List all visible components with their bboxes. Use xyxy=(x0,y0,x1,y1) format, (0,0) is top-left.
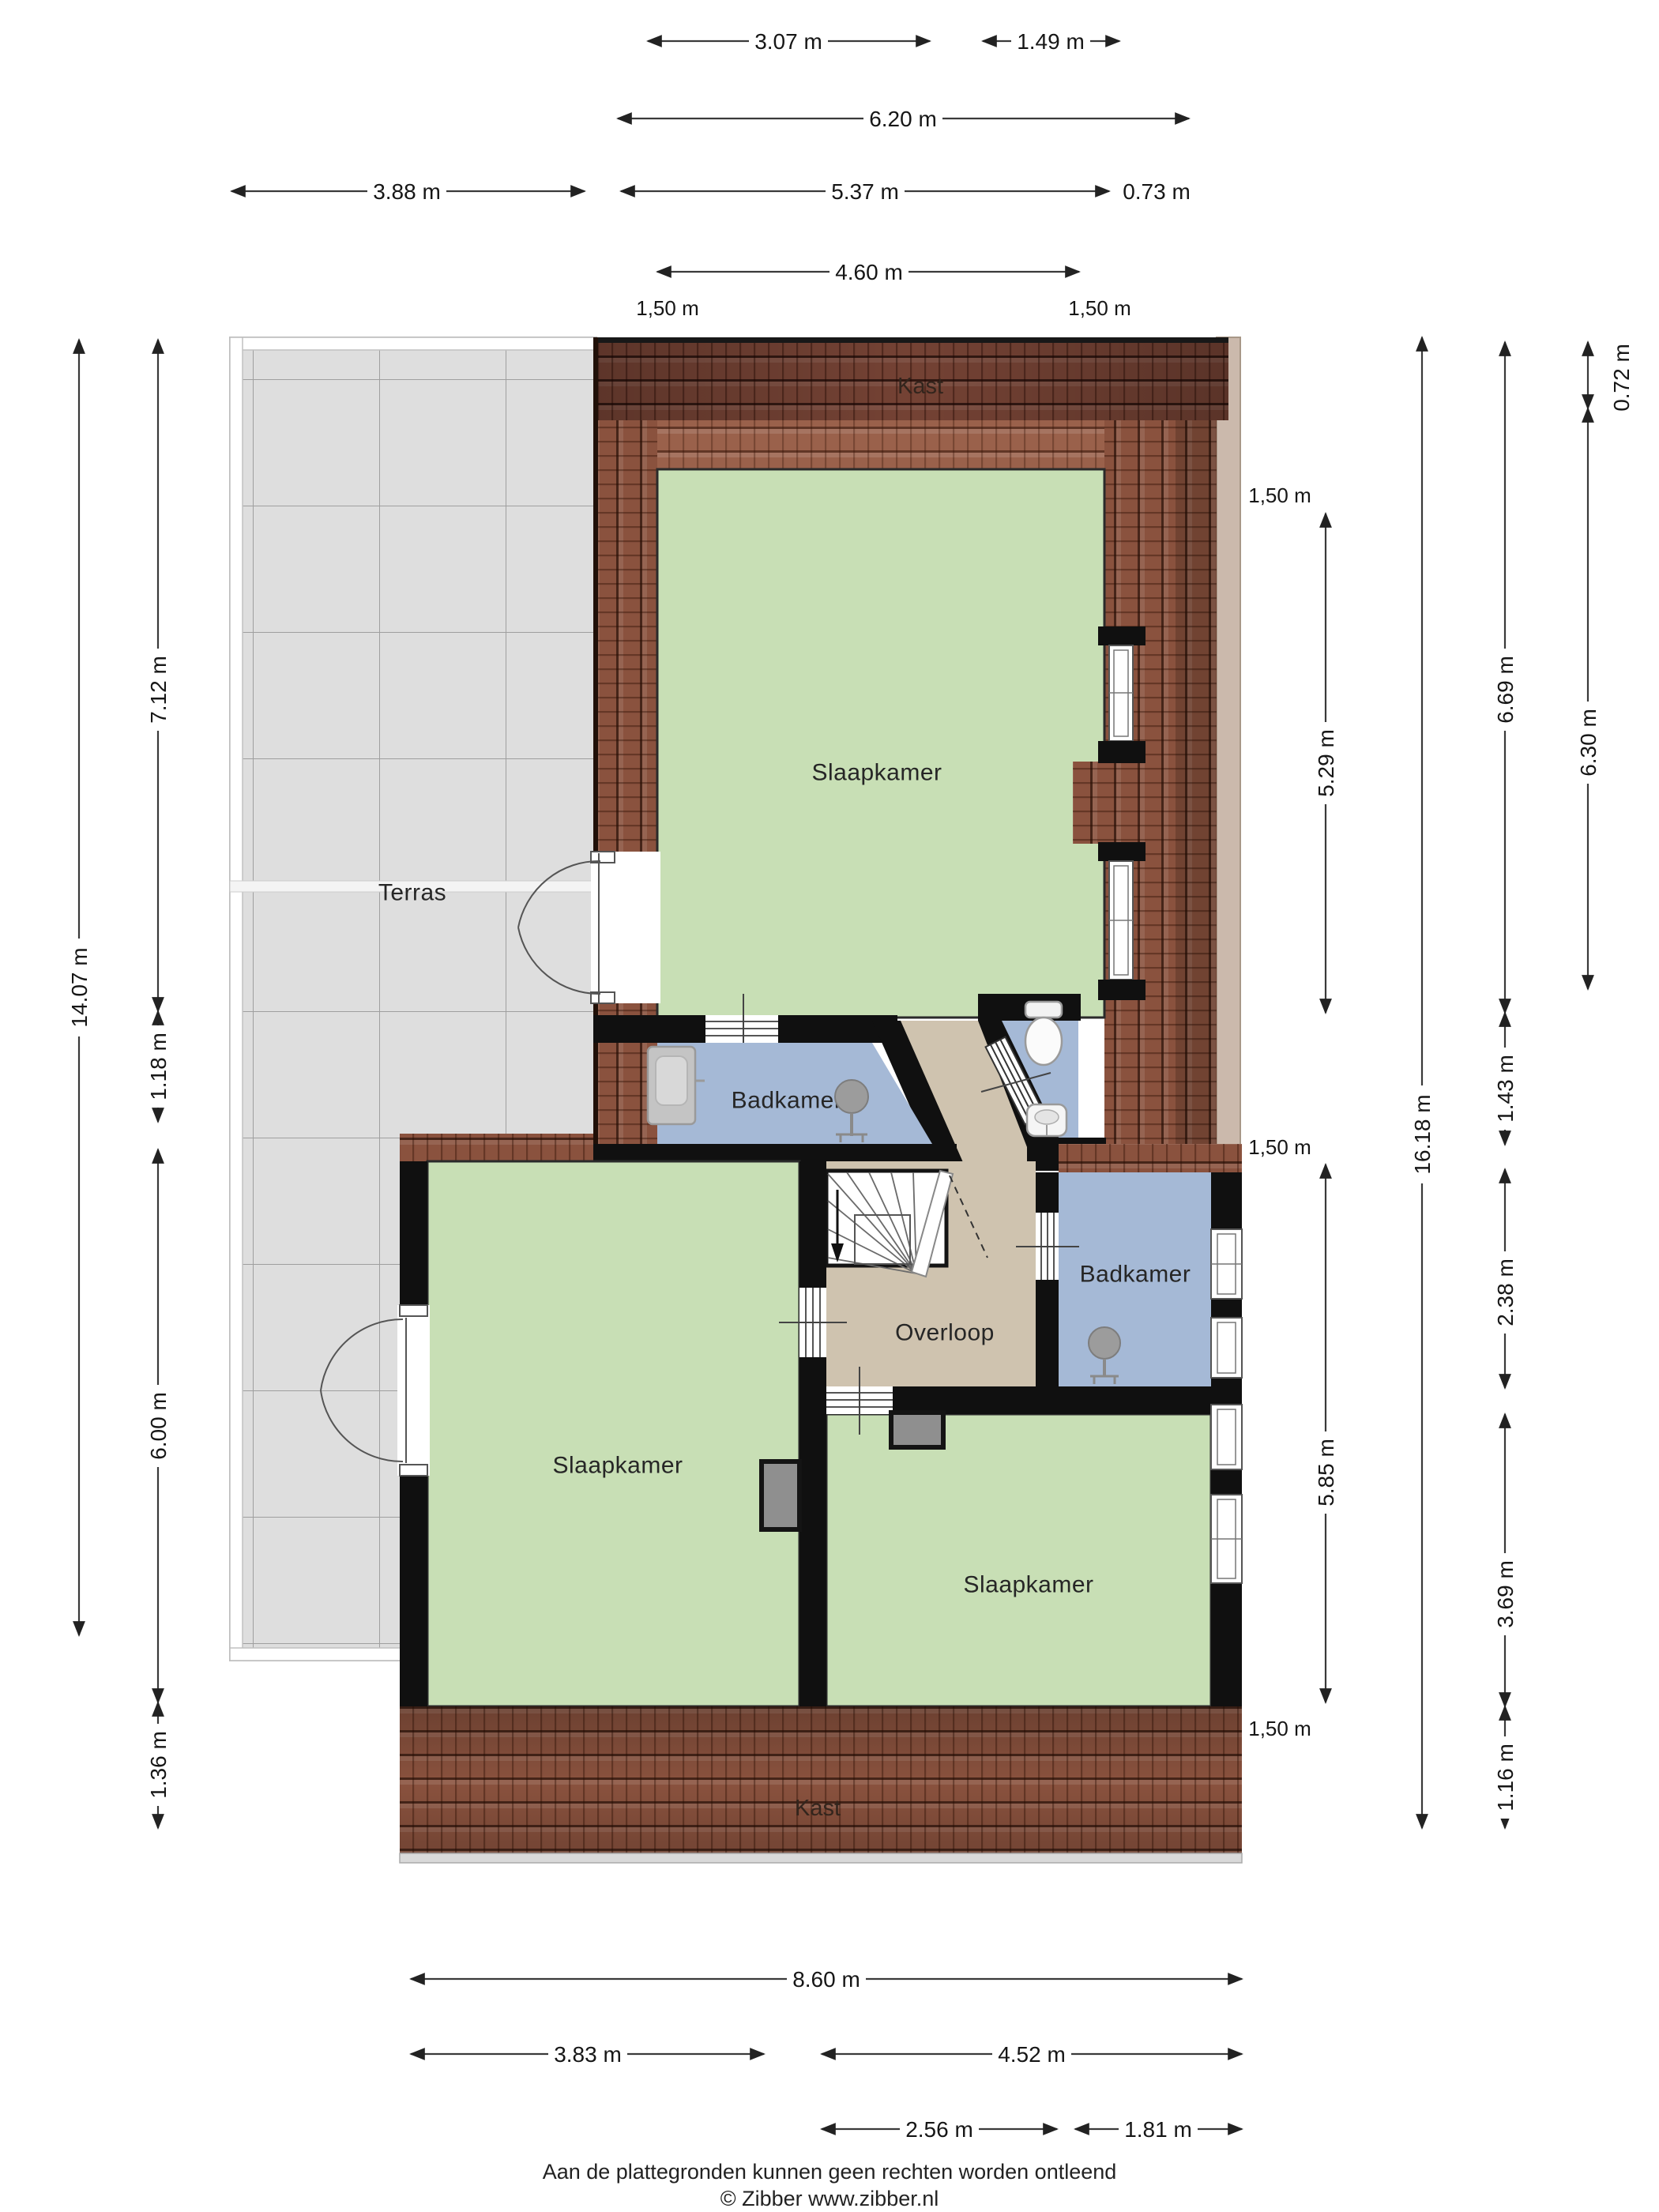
terrace-border-left xyxy=(230,337,243,1661)
dim-label: 14.07 m xyxy=(67,947,92,1027)
dim-label: 16.18 m xyxy=(1410,1094,1435,1174)
terrace-border-top xyxy=(230,337,596,350)
footer-disclaimer: Aan de plattegronden kunnen geen rechten… xyxy=(543,2160,1117,2184)
roof-strip-top-right xyxy=(1059,1144,1242,1172)
lower-block: Slaapkamer Overloop Badkamer Slaapkamer xyxy=(321,1134,1242,1863)
floorplan-page: Terras Slaapkamer Kast xyxy=(0,0,1659,2212)
bathtub-icon xyxy=(648,1047,705,1124)
roof-strip-top-left xyxy=(400,1134,593,1162)
window-icon xyxy=(1211,1405,1242,1469)
dim-label: 4.52 m xyxy=(998,2042,1066,2067)
terras-label: Terras xyxy=(378,880,446,906)
dimensions-right: 16.18 m 6.69 m 1.43 m 2.38 m 3.69 m 1.16… xyxy=(1408,337,1635,1828)
roof-patch xyxy=(1073,762,1106,844)
badkamer-right-label: Badkamer xyxy=(1080,1262,1191,1288)
slaapkamer-top-label: Slaapkamer xyxy=(811,760,942,786)
dimensions-inner-right: 1,50 m 5.29 m 1,50 m 5.85 m 1,50 m xyxy=(1248,483,1340,1740)
toilet-sink-icon xyxy=(1027,1104,1066,1136)
dimensions-left: 14.07 m 7.12 m 1.18 m 6.00 m 1.36 m xyxy=(65,340,172,1828)
dim-label: 1.81 m xyxy=(1124,2117,1192,2142)
window-icon xyxy=(1211,1229,1242,1299)
dim-label: 1,50 m xyxy=(1248,1717,1311,1740)
floor-plan-canvas: Terras Slaapkamer Kast xyxy=(0,0,1659,2212)
dim-label: 4.60 m xyxy=(835,260,903,284)
dim-label: 2.56 m xyxy=(905,2117,973,2142)
dimensions-top: 3.07 m 1.49 m 6.20 m 3.88 m 5.37 m 0.73 … xyxy=(231,27,1191,320)
dim-label: 8.60 m xyxy=(792,1967,860,1992)
dim-label: 1.16 m xyxy=(1493,1744,1518,1811)
dim-label: 1,50 m xyxy=(636,296,699,320)
roof-field-right xyxy=(1104,420,1217,1172)
dim-label: 6.20 m xyxy=(869,107,937,131)
roof-band-inner xyxy=(602,420,1122,469)
chimney-block xyxy=(762,1461,799,1529)
dim-label: 5.37 m xyxy=(831,179,899,204)
room-slaapkamer-right xyxy=(826,1414,1211,1706)
badkamer-left-label: Badkamer xyxy=(732,1088,843,1114)
dim-label: 1.49 m xyxy=(1017,29,1085,54)
toilet-icon xyxy=(1025,1002,1062,1065)
slaapkamer-left-label: Slaapkamer xyxy=(552,1453,683,1479)
chimney-block xyxy=(891,1413,943,1447)
dim-label: 6.30 m xyxy=(1576,709,1601,777)
dim-label: 5.85 m xyxy=(1314,1439,1338,1507)
room-slaapkamer-top xyxy=(657,469,1104,1018)
dim-label: 3.83 m xyxy=(554,2042,622,2067)
roof-band-bottom-kast: Kast xyxy=(400,1706,1242,1863)
dim-label: 0.72 m xyxy=(1609,344,1634,412)
dim-label: 2.38 m xyxy=(1493,1258,1518,1326)
dim-label: 1.36 m xyxy=(146,1731,171,1799)
dim-label: 3.88 m xyxy=(373,179,441,204)
footer: Aan de plattegronden kunnen geen rechten… xyxy=(543,2160,1117,2210)
dim-label: 1,50 m xyxy=(1248,483,1311,507)
window-icon xyxy=(1211,1495,1242,1583)
slaapkamer-right-label: Slaapkamer xyxy=(963,1572,1093,1598)
footer-credit: © Zibber www.zibber.nl xyxy=(720,2187,939,2210)
dimensions-bottom: 8.60 m 3.83 m 4.52 m 2.56 m 1.81 m xyxy=(411,1965,1242,2143)
upper-block: Slaapkamer Kast xyxy=(518,337,1240,1172)
dim-label: 6.69 m xyxy=(1493,656,1518,724)
dim-label: 1,50 m xyxy=(1248,1135,1311,1159)
dim-label: 1.18 m xyxy=(146,1033,171,1100)
dim-label: 6.00 m xyxy=(146,1392,171,1460)
roof-band-left xyxy=(593,337,657,1171)
dim-label: 5.29 m xyxy=(1314,729,1338,797)
window-icon xyxy=(1211,1318,1242,1378)
overloop-label: Overloop xyxy=(895,1320,995,1346)
kast-top-label: Kast xyxy=(897,374,943,399)
dim-label: 1,50 m xyxy=(1068,296,1131,320)
dim-label: 7.12 m xyxy=(146,656,171,724)
roof-edge-right xyxy=(1217,337,1240,1172)
kast-bottom-label: Kast xyxy=(795,1796,841,1821)
dim-label: 1.43 m xyxy=(1493,1055,1518,1123)
room-slaapkamer-left xyxy=(427,1161,799,1706)
dim-label: 3.69 m xyxy=(1493,1560,1518,1628)
dim-label: 3.07 m xyxy=(754,29,822,54)
dim-label: 0.73 m xyxy=(1123,179,1191,204)
